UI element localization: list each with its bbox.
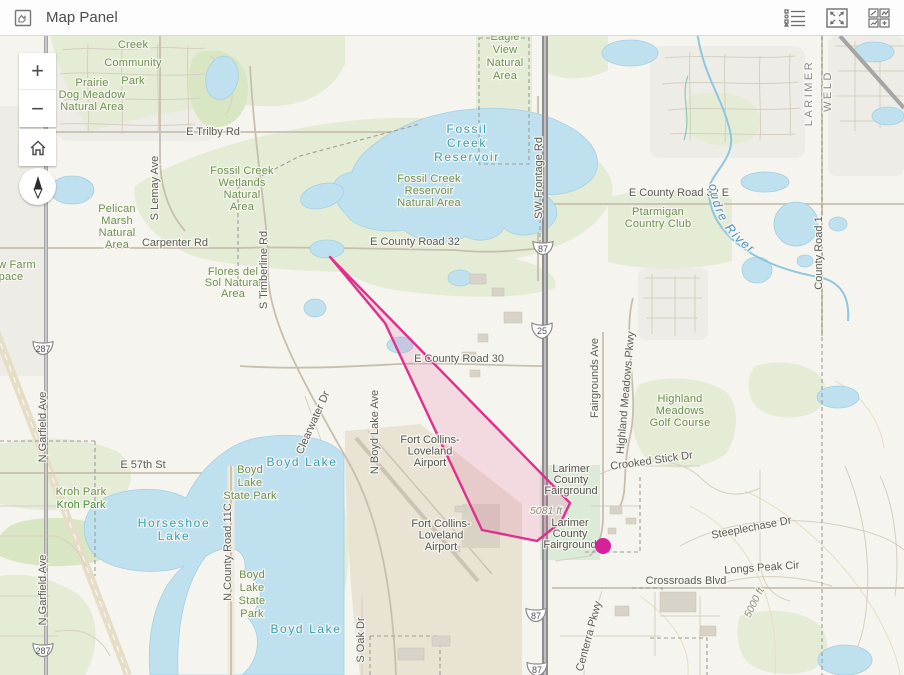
map-label-ptarmigan-country-club: PtarmiganCountry Club (625, 206, 692, 230)
map-label-elevation-5081-ft: 5081 ft (530, 505, 563, 517)
map-label-highland-meadows-golf-course: HighlandMeadowsGolf Course (650, 393, 711, 429)
map-label-sw-frontage-rd: SW Frontage Rd (533, 137, 545, 219)
compass-button[interactable] (19, 168, 56, 205)
map-label-boyd-lake-s: Boyd Lake (270, 622, 341, 636)
map-label-n-garfield-ave-s: N Garfield Ave (37, 555, 49, 626)
map-label-fairgrounds-ave: Fairgrounds Ave (589, 338, 601, 418)
map-label-kroh-park-1: Kroh Park (56, 486, 107, 498)
map-label-e-57th-st: E 57th St (120, 459, 165, 471)
marker-layer (595, 538, 611, 554)
point-marker[interactable] (595, 538, 611, 554)
svg-text:87: 87 (538, 244, 548, 254)
map-label-e-county-road-32: E County Road 32 (370, 236, 460, 248)
map-panel-icon[interactable] (12, 7, 34, 29)
map-label-n-boyd-lake-ave: N Boyd Lake Ave (369, 390, 381, 474)
map-label-fossil-creek-reservoir-natural-area: Fossil CreekReservoirNatural Area (397, 173, 461, 209)
zoom-out-button[interactable]: − (19, 90, 56, 127)
svg-text:87: 87 (531, 611, 541, 621)
map-label-boyd-lake-state-park-s: BoydLakeStatePark (239, 569, 266, 620)
compass-north-icon (25, 174, 51, 200)
map-panel-icon-glyph (14, 9, 32, 27)
map-label-e-trilby-rd: E Trilby Rd (186, 126, 240, 138)
legend-list-icon[interactable] (782, 7, 808, 29)
route-shield-us-287-north: 287 (33, 342, 53, 355)
home-button[interactable] (19, 129, 56, 166)
map-label-farm-open-space-clipped-2: pace (0, 271, 23, 283)
basemap-svg: 28728787878725 CreekCommunityParkPrairie… (0, 36, 904, 675)
panel-header: Map Panel (0, 0, 904, 36)
home-icon (29, 139, 47, 157)
svg-text:25: 25 (537, 326, 547, 336)
map-label-s-timberline-rd: S Timberline Rd (258, 231, 270, 309)
route-shield-us-287-south: 287 (33, 644, 53, 657)
map-label-county-road-1: County Road 1 (813, 216, 825, 289)
map-label-kroh-park-2: Kroh Park (57, 499, 106, 511)
svg-text:287: 287 (35, 646, 50, 656)
page-title: Map Panel (46, 9, 118, 26)
map-label-boyd-lake-n: Boyd Lake (266, 455, 337, 469)
map-label-larimer-county: LARIMER (803, 60, 815, 126)
map-label-n-county-road-11c: N County Road 11C (222, 503, 234, 601)
expand-icon[interactable] (824, 6, 850, 30)
map-label-s-oak-dr: S Oak Dr (355, 617, 367, 663)
zoom-in-button[interactable]: + (19, 53, 56, 90)
map-label-farm-open-space-clipped-1: w Farm (0, 259, 36, 271)
map-label-carpenter-rd: Carpenter Rd (142, 237, 208, 249)
svg-text:87: 87 (532, 665, 542, 675)
map-canvas[interactable]: 28728787878725 CreekCommunityParkPrairie… (0, 36, 904, 675)
map-label-crossroads-blvd: Crossroads Blvd (646, 575, 727, 587)
map-label-n-garfield-ave-n: N Garfield Ave (37, 392, 49, 463)
map-label-weld-county: WELD (822, 70, 834, 112)
map-label-e-county-road-30: E County Road 30 (414, 353, 504, 365)
svg-text:287: 287 (35, 344, 50, 354)
map-panel-window: Map Panel (0, 0, 904, 675)
map-label-s-lemay-ave: S Lemay Ave (149, 156, 161, 221)
widgets-grid-icon[interactable] (866, 6, 892, 30)
